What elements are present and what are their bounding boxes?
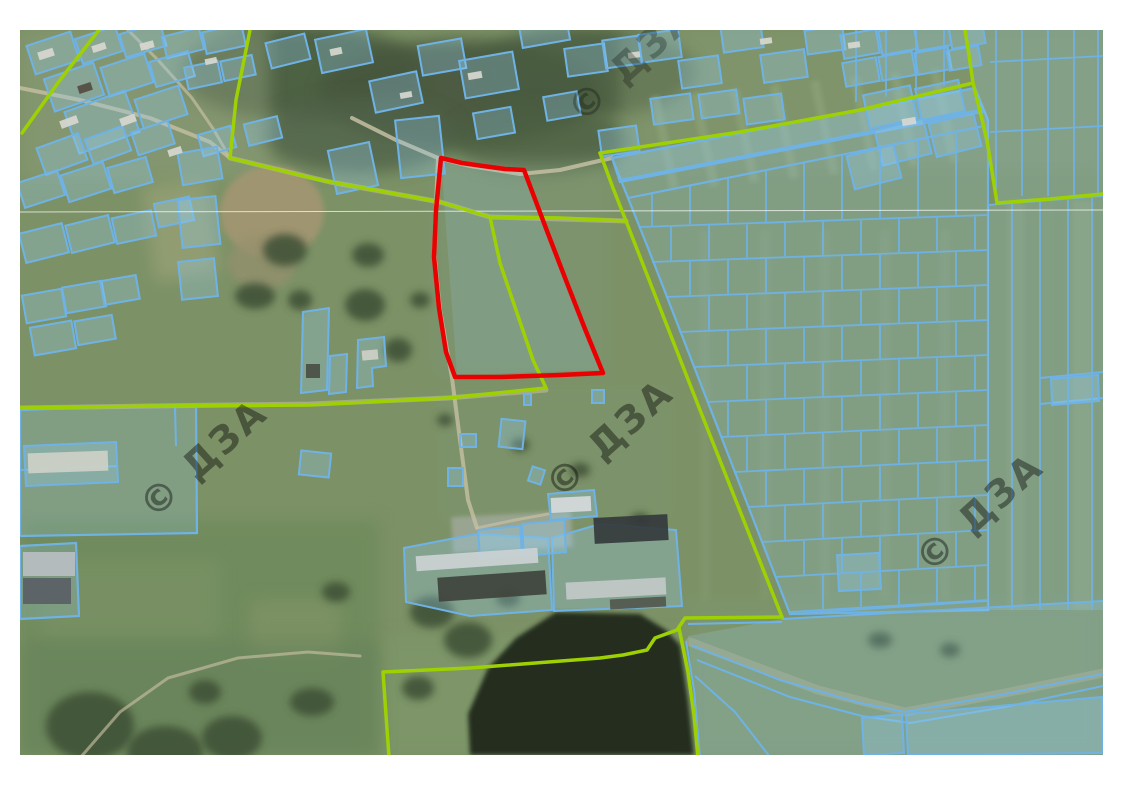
- parcel[interactable]: [178, 196, 221, 248]
- tree-canopy: [46, 692, 134, 760]
- parcel[interactable]: [840, 29, 880, 59]
- parcel[interactable]: [947, 45, 982, 70]
- tree-canopy: [437, 414, 453, 426]
- parcel[interactable]: [395, 116, 445, 178]
- parcel[interactable]: [678, 55, 722, 88]
- parcel[interactable]: [650, 93, 693, 124]
- parcel[interactable]: [878, 51, 916, 81]
- building-roof: [593, 514, 668, 544]
- parcel-boundary-line: [175, 408, 176, 446]
- parcel[interactable]: [842, 57, 880, 87]
- tree-canopy: [410, 292, 430, 308]
- tree-canopy: [189, 680, 221, 704]
- tree-canopy: [202, 716, 262, 760]
- parcel[interactable]: [418, 38, 467, 75]
- tree-canopy: [352, 243, 384, 267]
- parcel[interactable]: [22, 289, 66, 324]
- cadastral-map[interactable]: © ДЗА© ДЗА© ДЗА© ДЗА: [0, 0, 1122, 793]
- tree-canopy: [290, 688, 334, 716]
- parcel[interactable]: [448, 468, 463, 486]
- parcel[interactable]: [499, 419, 526, 449]
- tree-canopy: [384, 338, 412, 362]
- cadastral-map-svg[interactable]: © ДЗА© ДЗА© ДЗА© ДЗА: [0, 0, 1122, 793]
- building-roof: [362, 349, 379, 360]
- building-roof: [23, 578, 71, 604]
- tree-canopy: [322, 582, 350, 602]
- parcel[interactable]: [178, 147, 223, 185]
- parcel[interactable]: [299, 450, 331, 477]
- tree-canopy: [345, 289, 385, 321]
- tree-canopy: [444, 622, 492, 658]
- tree-canopy: [263, 234, 307, 266]
- parcel[interactable]: [699, 89, 740, 118]
- parcel[interactable]: [100, 275, 140, 305]
- page: © ДЗА© ДЗА© ДЗА© ДЗА: [0, 0, 1122, 793]
- parcel[interactable]: [473, 107, 515, 139]
- map-layers: © ДЗА© ДЗА© ДЗА© ДЗА: [17, 0, 1103, 778]
- parcel[interactable]: [178, 258, 218, 300]
- tree-canopy: [235, 283, 275, 309]
- parcel[interactable]: [862, 714, 904, 755]
- parcel[interactable]: [524, 394, 531, 405]
- building-roof: [306, 364, 320, 378]
- parcel[interactable]: [30, 321, 76, 356]
- parcel[interactable]: [74, 315, 116, 345]
- parcel[interactable]: [460, 434, 476, 447]
- parcel[interactable]: [743, 93, 784, 124]
- tree-canopy: [402, 676, 434, 700]
- parcel[interactable]: [62, 281, 106, 314]
- parcel[interactable]: [329, 354, 347, 394]
- building-roof: [28, 451, 109, 474]
- tree-canopy: [288, 290, 312, 310]
- parcel[interactable]: [760, 49, 807, 83]
- parcel[interactable]: [301, 308, 329, 393]
- parcel[interactable]: [592, 390, 604, 403]
- building-roof: [23, 552, 75, 576]
